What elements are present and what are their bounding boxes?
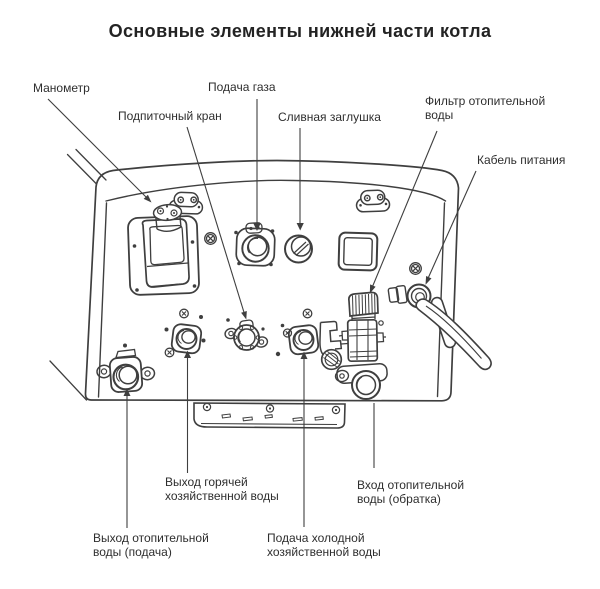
callout-heating-supply-outlet: Выход отопительной воды (подача) (93, 532, 209, 559)
mounting-bracket-right (356, 190, 390, 212)
callout-manometer: Манометр (33, 82, 90, 96)
callout-cold-dhw-inlet: Подача холодной хозяйственной воды (267, 532, 381, 559)
boiler-manual-page: Основные элементы нижней части котла (0, 0, 600, 589)
callout-line: Сливная заглушка (278, 111, 381, 125)
makeup-valve-drawing (224, 318, 269, 350)
callout-line: Выход отопительной (93, 532, 209, 546)
callout-line: Вход отопительной (357, 479, 464, 493)
callout-line: воды (425, 109, 545, 123)
boiler-bottom-diagram (0, 0, 600, 589)
callout-line: Фильтр отопительной (425, 95, 545, 109)
heating-filter-drawing (335, 292, 388, 399)
callout-line: воды (подача) (93, 546, 209, 560)
callout-line: хозяйственной воды (165, 490, 279, 504)
callout-makeup-valve: Подпиточный кран (118, 110, 222, 124)
callout-power-cable: Кабель питания (477, 154, 565, 168)
elbow-assembly-drawing (320, 321, 348, 369)
callout-line: Кабель питания (477, 154, 565, 168)
gas-connector-drawing (234, 223, 275, 267)
hot-dhw-outlet-drawing (165, 309, 206, 357)
manometer-drawing (128, 204, 200, 295)
callout-line: воды (обратка) (357, 493, 464, 507)
callout-leader-lines (48, 99, 476, 528)
bottom-rail-drawing (194, 403, 345, 428)
square-opening-drawing (339, 233, 378, 271)
panel-screw-right (410, 263, 422, 275)
panel-screw-left (205, 233, 217, 245)
callout-drain-plug: Сливная заглушка (278, 111, 381, 125)
callout-line: Подпиточный кран (118, 110, 222, 124)
callout-line: хозяйственной воды (267, 546, 381, 560)
heating-supply-outlet-drawing (96, 344, 155, 393)
callout-gas-supply: Подача газа (208, 81, 276, 95)
callout-line: Манометр (33, 82, 90, 96)
callout-line: Выход горячей (165, 476, 279, 490)
drain-plug-drawing (285, 236, 312, 263)
callout-heating-return-inlet: Вход отопительной воды (обратка) (357, 479, 464, 506)
cold-dhw-inlet-drawing (276, 309, 319, 356)
callout-line: Подача холодной (267, 532, 381, 546)
callout-heating-water-filter: Фильтр отопительной воды (425, 95, 545, 122)
callout-hot-dhw-outlet: Выход горячей хозяйственной воды (165, 476, 279, 503)
callout-line: Подача газа (208, 81, 276, 95)
